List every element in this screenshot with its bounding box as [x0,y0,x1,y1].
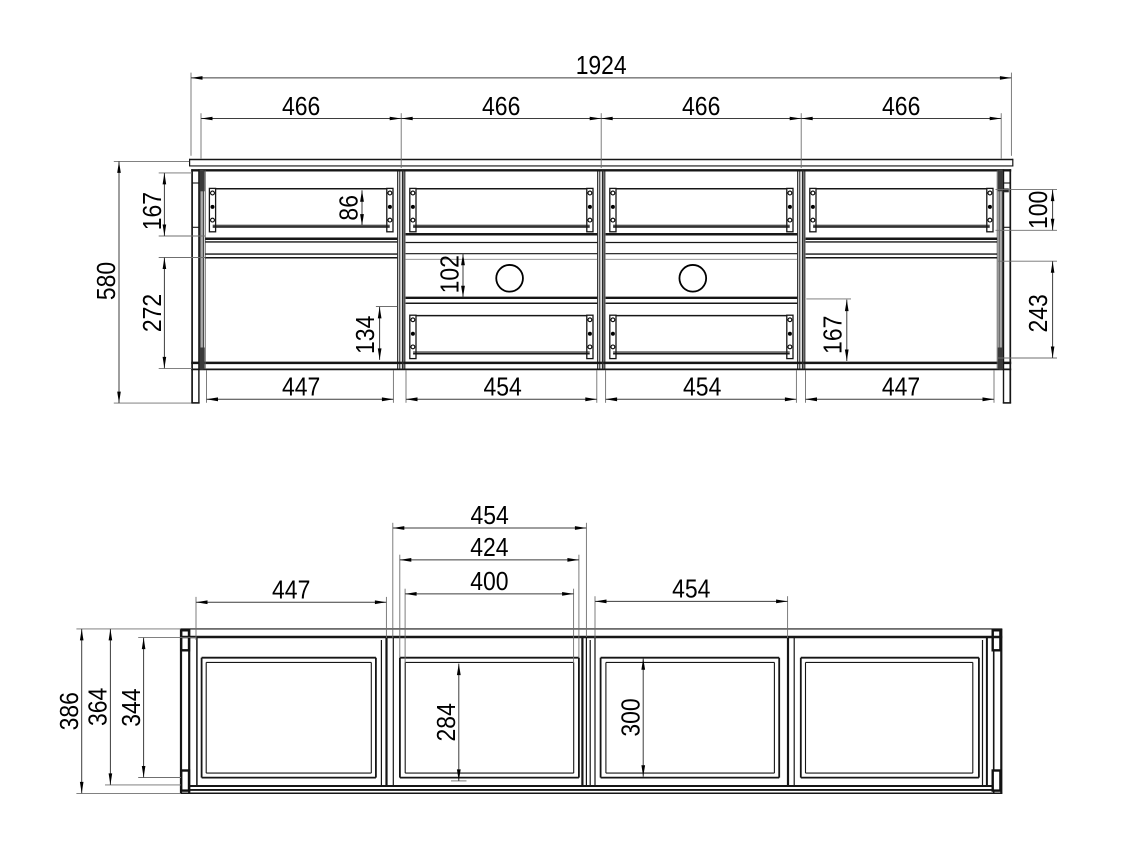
svg-text:424: 424 [470,532,508,562]
svg-text:454: 454 [683,372,721,402]
svg-text:364: 364 [83,688,113,726]
svg-text:386: 386 [54,692,84,730]
svg-text:167: 167 [817,316,847,354]
svg-text:466: 466 [282,91,320,121]
svg-text:284: 284 [431,703,461,741]
svg-text:466: 466 [882,91,920,121]
svg-text:466: 466 [682,91,720,121]
svg-text:466: 466 [482,91,520,121]
svg-text:102: 102 [434,255,464,293]
svg-text:400: 400 [470,566,508,596]
svg-text:300: 300 [615,698,645,736]
svg-text:580: 580 [91,262,121,300]
svg-text:243: 243 [1023,294,1053,332]
svg-text:167: 167 [137,192,167,230]
svg-text:454: 454 [470,500,508,530]
svg-text:272: 272 [137,294,167,332]
svg-text:134: 134 [350,316,380,354]
svg-text:447: 447 [882,372,920,402]
svg-text:447: 447 [282,372,320,402]
svg-text:344: 344 [116,688,146,726]
svg-text:454: 454 [672,574,710,604]
svg-text:454: 454 [483,372,521,402]
svg-text:100: 100 [1023,191,1053,229]
svg-text:86: 86 [333,195,363,221]
svg-text:447: 447 [272,574,310,604]
svg-text:1924: 1924 [576,50,627,80]
